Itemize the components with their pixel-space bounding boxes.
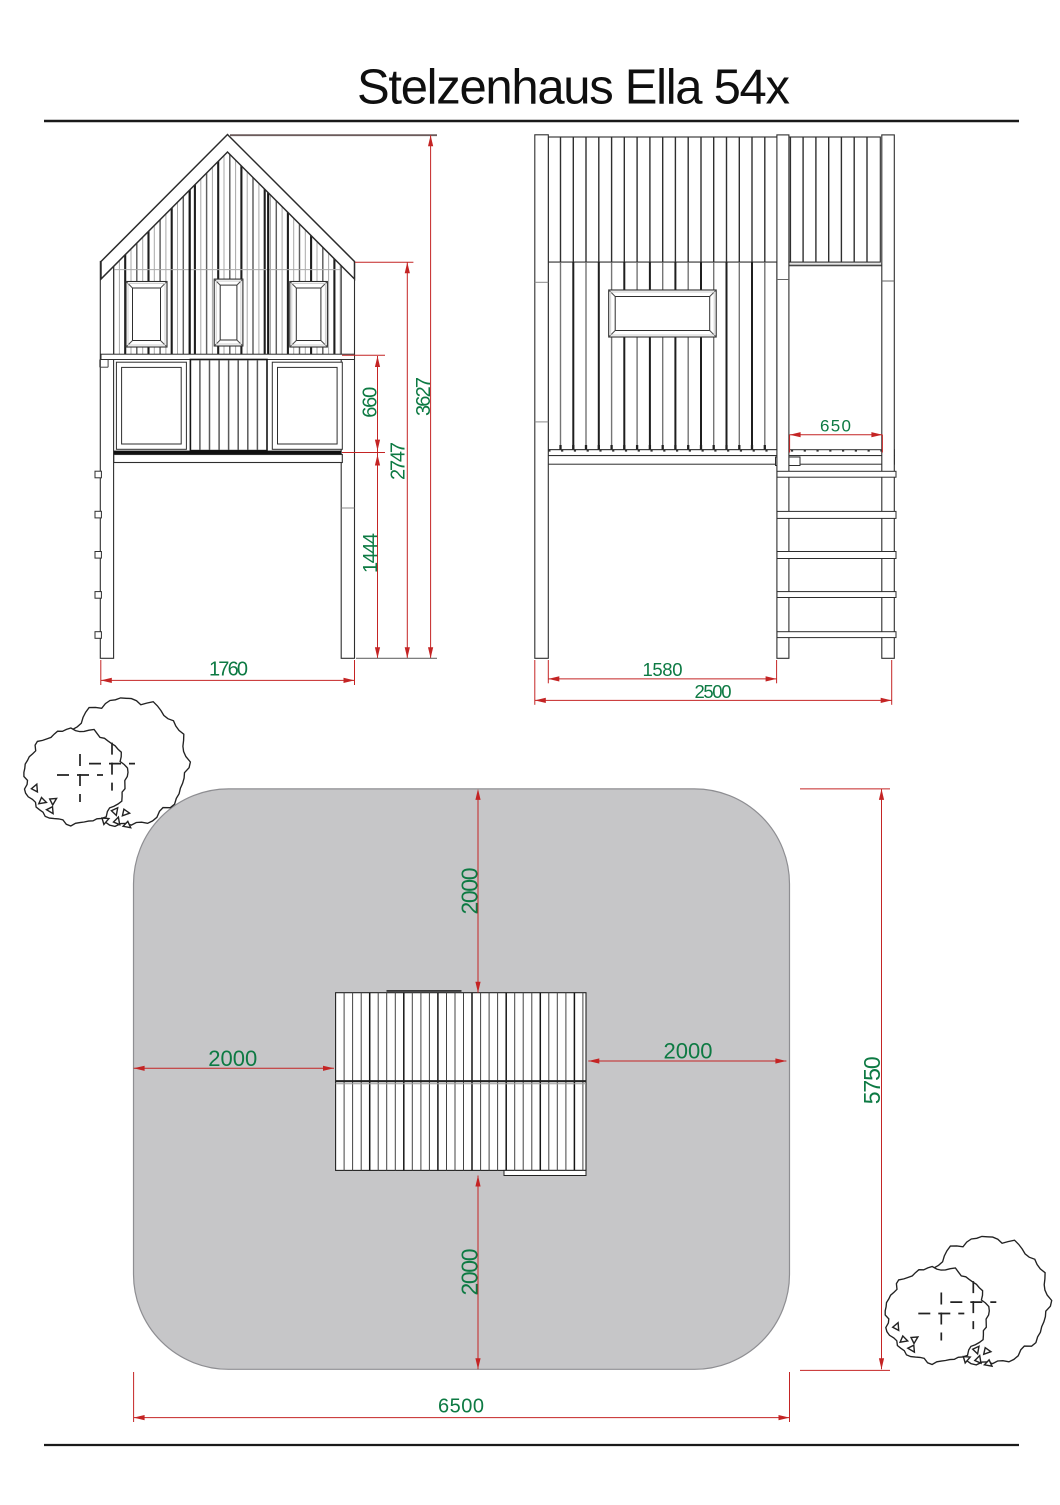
svg-text:2000: 2000 xyxy=(457,868,483,915)
svg-text:5750: 5750 xyxy=(859,1056,885,1104)
svg-text:6500: 6500 xyxy=(438,1396,484,1418)
svg-text:Stelzenhaus Ella 54x: Stelzenhaus Ella 54x xyxy=(357,61,790,115)
svg-text:2500: 2500 xyxy=(695,681,732,702)
svg-text:1580: 1580 xyxy=(643,659,683,680)
svg-text:2000: 2000 xyxy=(664,1038,713,1063)
svg-text:650: 650 xyxy=(820,417,851,436)
svg-text:1760: 1760 xyxy=(209,659,248,681)
svg-text:2747: 2747 xyxy=(388,442,410,480)
svg-text:660: 660 xyxy=(360,387,382,418)
svg-text:3627: 3627 xyxy=(413,377,435,416)
svg-text:2000: 2000 xyxy=(457,1249,483,1296)
svg-text:1444: 1444 xyxy=(360,533,382,573)
svg-text:2000: 2000 xyxy=(208,1046,257,1071)
